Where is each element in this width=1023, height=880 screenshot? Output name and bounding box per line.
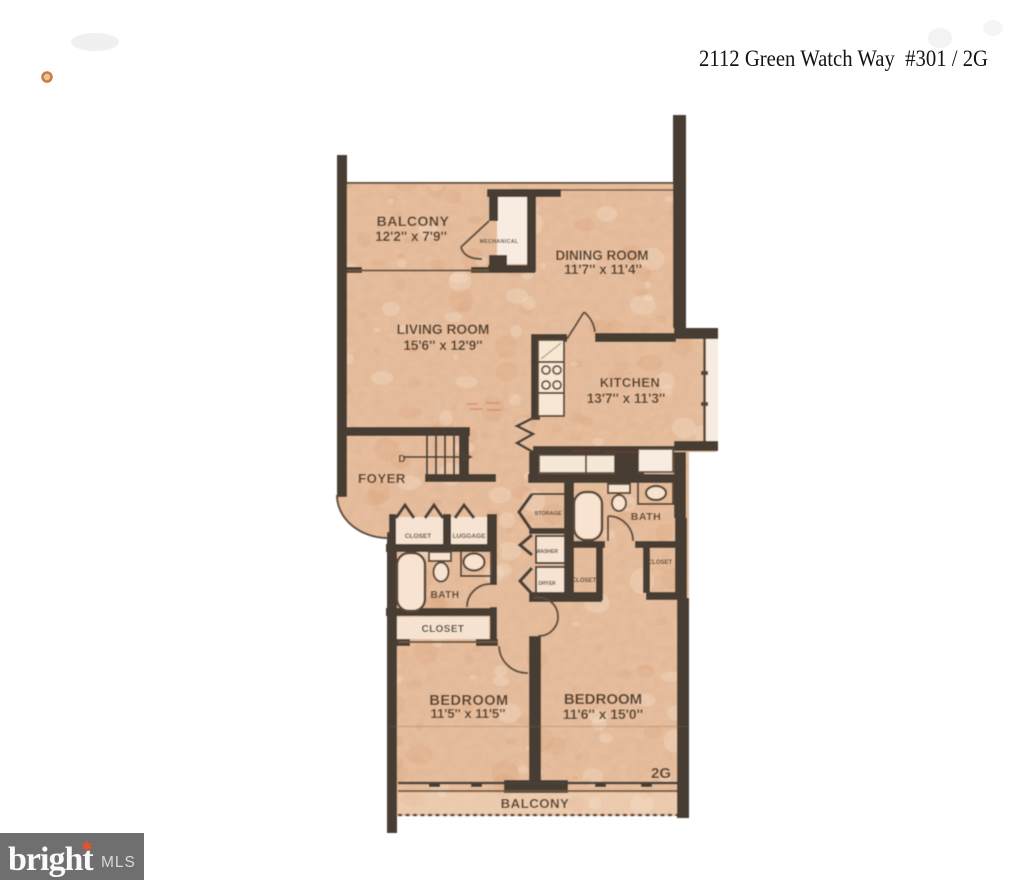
svg-text:STORAGE: STORAGE: [534, 511, 561, 517]
svg-text:CLOSET: CLOSET: [572, 578, 597, 584]
svg-text:DRYER: DRYER: [538, 581, 556, 587]
svg-text:2G: 2G: [651, 765, 671, 782]
svg-text:BALCONY: BALCONY: [377, 213, 450, 229]
svg-text:LUGGAGE: LUGGAGE: [453, 533, 487, 540]
svg-text:WASHER: WASHER: [536, 549, 558, 555]
svg-text:11'5'' x 11'5'': 11'5'' x 11'5'': [431, 706, 506, 721]
svg-text:bright: bright: [8, 841, 94, 878]
svg-text:MECHANICAL: MECHANICAL: [480, 239, 519, 245]
svg-text:D: D: [398, 454, 405, 465]
svg-text:11'7'' x 11'4'': 11'7'' x 11'4'': [564, 262, 642, 277]
svg-text:12'2'' x 7'9'': 12'2'' x 7'9'': [375, 229, 447, 244]
svg-text:BATH: BATH: [631, 511, 661, 523]
svg-text:13'7'' x 11'3'': 13'7'' x 11'3'': [587, 391, 666, 406]
svg-text:CLOSET: CLOSET: [648, 560, 673, 566]
svg-text:2112 Green Watch Way #301 / 2: 2112 Green Watch Way #301 / 2G: [699, 46, 988, 72]
svg-text:CLOSET: CLOSET: [405, 533, 431, 540]
svg-text:MLS: MLS: [101, 854, 136, 871]
svg-text:CLOSET: CLOSET: [422, 624, 465, 635]
svg-text:11'6'' x 15'0'': 11'6'' x 15'0'': [563, 707, 643, 722]
svg-text:KITCHEN: KITCHEN: [600, 375, 660, 390]
svg-text:DINING ROOM: DINING ROOM: [556, 248, 649, 263]
svg-text:BATH: BATH: [430, 590, 459, 601]
svg-text:15'6'' x 12'9'': 15'6'' x 12'9'': [403, 338, 482, 353]
svg-text:FOYER: FOYER: [358, 471, 406, 486]
svg-text:BALCONY: BALCONY: [501, 796, 570, 811]
svg-text:BEDROOM: BEDROOM: [564, 691, 642, 708]
svg-text:LIVING ROOM: LIVING ROOM: [397, 322, 490, 337]
